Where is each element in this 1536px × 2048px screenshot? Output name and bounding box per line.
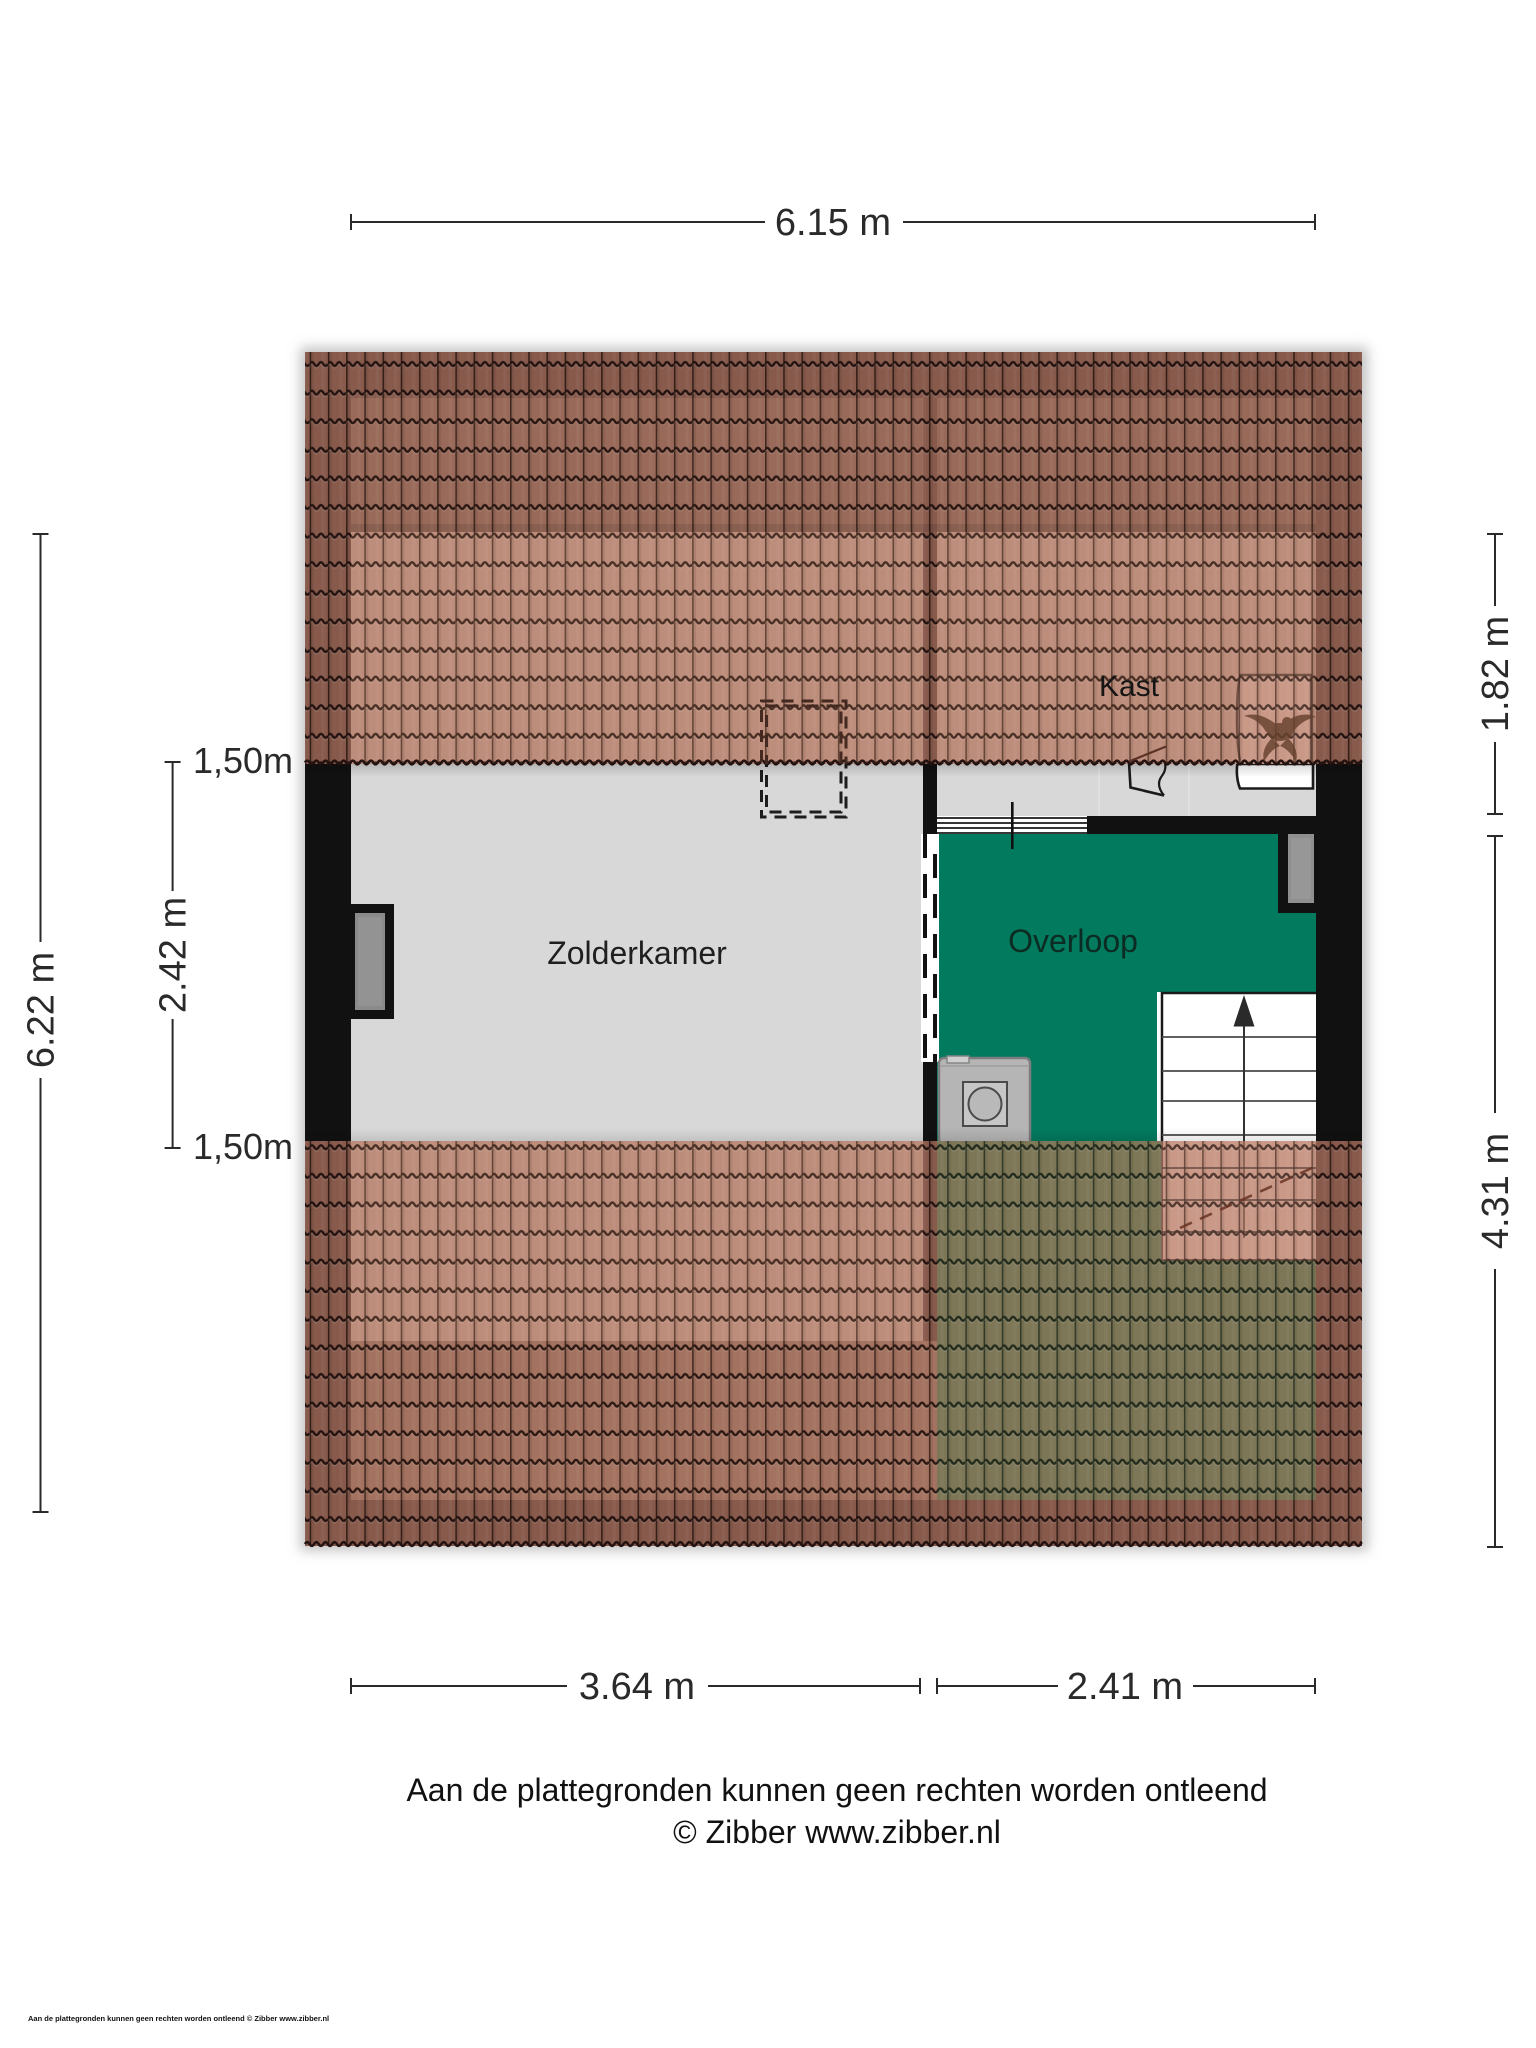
svg-text:1.82 m: 1.82 m [1475,616,1517,732]
svg-text:© Zibber www.zibber.nl: © Zibber www.zibber.nl [673,1814,1001,1850]
svg-text:Zolderkamer: Zolderkamer [547,935,727,971]
svg-text:Aan de plattegronden kunnen ge: Aan de plattegronden kunnen geen rechten… [28,2014,329,2023]
svg-text:Overloop: Overloop [1008,923,1138,959]
svg-text:4.31 m: 4.31 m [1475,1133,1517,1249]
svg-text:Kast: Kast [1099,670,1160,703]
svg-text:1,50m: 1,50m [193,1126,293,1167]
svg-text:2.42 m: 2.42 m [153,897,195,1013]
svg-text:Aan de plattegronden kunnen ge: Aan de plattegronden kunnen geen rechten… [406,1772,1267,1808]
svg-text:1,50m: 1,50m [193,740,293,781]
svg-text:2.41 m: 2.41 m [1067,1666,1183,1708]
svg-text:6.15 m: 6.15 m [775,202,891,244]
svg-text:3.64 m: 3.64 m [579,1666,695,1708]
svg-text:6.22 m: 6.22 m [21,952,63,1068]
